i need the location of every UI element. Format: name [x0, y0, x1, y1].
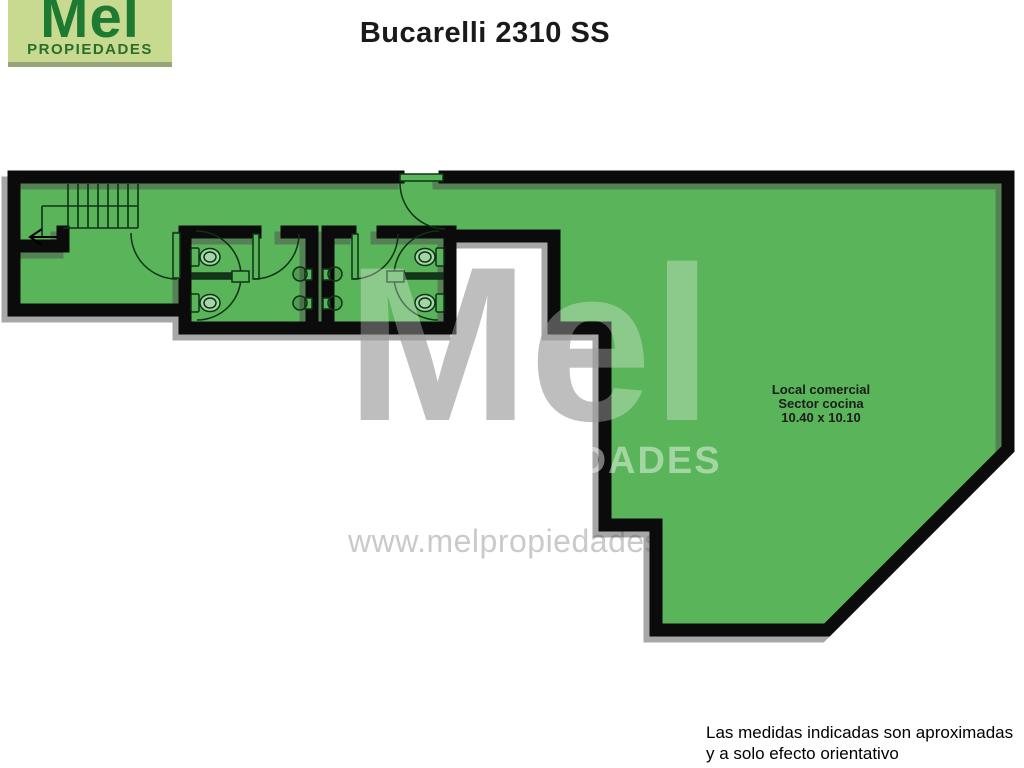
sink-icon	[293, 267, 312, 281]
sink-icon	[293, 296, 312, 310]
disclaimer-line2: y a solo efecto orientativo	[706, 743, 1013, 764]
toilet-icon	[415, 248, 444, 266]
toilet-icon	[191, 248, 220, 266]
agency-logo: Mel PROPIEDADES	[8, 0, 172, 67]
room-label-name: Local comercial	[740, 383, 902, 397]
agency-logo-name: Mel	[8, 0, 172, 42]
partition-handle	[387, 271, 404, 282]
disclaimer: Las medidas indicadas son aproximadas y …	[706, 722, 1013, 764]
room-label-sector: Sector cocina	[740, 397, 902, 411]
sink-icon	[323, 296, 342, 310]
toilet-icon	[191, 294, 220, 312]
room-label: Local comercial Sector cocina 10.40 x 10…	[740, 383, 902, 425]
disclaimer-line1: Las medidas indicadas son aproximadas	[706, 722, 1013, 743]
sink-icon	[323, 267, 342, 281]
room-label-dimensions: 10.40 x 10.10	[740, 411, 902, 425]
toilet-icon	[415, 294, 444, 312]
agency-logo-tagline: PROPIEDADES	[8, 42, 172, 57]
page-title: Bucarelli 2310 SS	[340, 17, 630, 50]
partition-handle	[232, 271, 249, 282]
